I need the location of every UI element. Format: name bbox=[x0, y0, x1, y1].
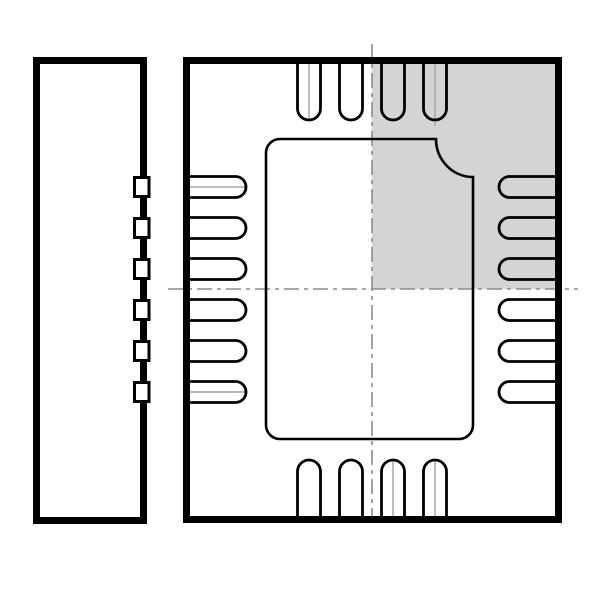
side-view-bump bbox=[135, 260, 150, 279]
bottom-pin-pad-outline bbox=[340, 460, 363, 520]
right-pin-pad-outline bbox=[499, 300, 559, 321]
side-view-bump bbox=[135, 178, 150, 197]
right-pin-pad-outline bbox=[499, 382, 559, 403]
ic-package-outline-svg bbox=[0, 0, 600, 590]
left-pin-pad-outline bbox=[186, 218, 246, 239]
right-pin-pad-outline bbox=[499, 341, 559, 362]
left-pin-pad-outline bbox=[186, 341, 246, 362]
package-side-view-border bbox=[37, 61, 144, 521]
package-drawing-canvas bbox=[0, 0, 600, 590]
bottom-pin-pad-outline bbox=[298, 460, 321, 520]
left-pin-pad-outline bbox=[186, 300, 246, 321]
top-pin-pad-outline bbox=[340, 60, 363, 120]
side-view-bump bbox=[135, 219, 150, 238]
side-view-bump bbox=[135, 383, 150, 402]
left-pin-pad-outline bbox=[186, 259, 246, 280]
side-view-bump bbox=[135, 301, 150, 320]
side-view-bump bbox=[135, 342, 150, 361]
